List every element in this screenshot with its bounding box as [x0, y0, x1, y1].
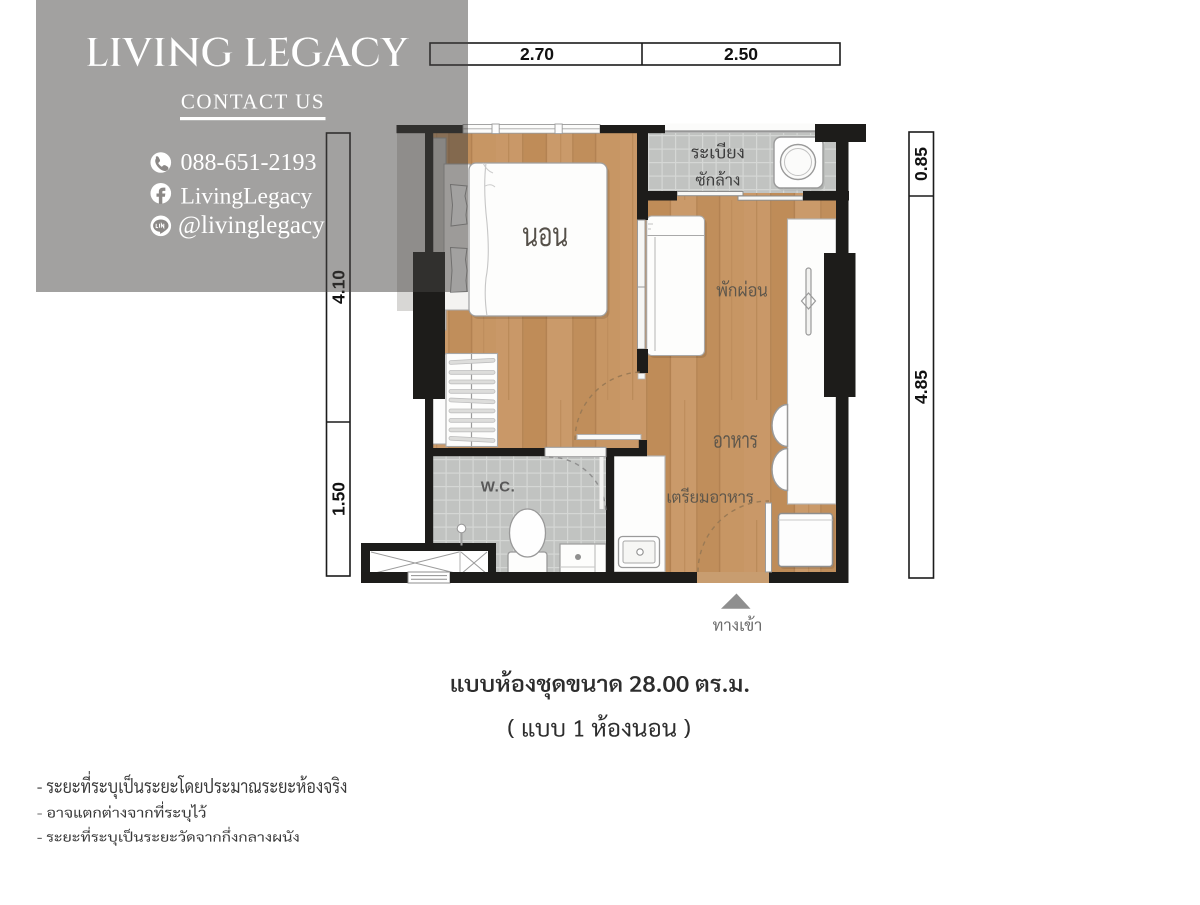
- svg-text:4.85: 4.85: [911, 370, 931, 404]
- svg-text:2.50: 2.50: [724, 44, 758, 64]
- svg-text:088-651-2193: 088-651-2193: [181, 150, 317, 176]
- svg-text:0.85: 0.85: [911, 147, 931, 181]
- svg-text:W.C.: W.C.: [481, 479, 516, 496]
- svg-text:1.50: 1.50: [329, 482, 349, 516]
- svg-text:LivingLegacy: LivingLegacy: [181, 184, 313, 210]
- svg-text:@livinglegacy: @livinglegacy: [178, 212, 325, 239]
- svg-text:2.70: 2.70: [520, 44, 554, 64]
- svg-text:CONTACT US: CONTACT US: [181, 90, 325, 114]
